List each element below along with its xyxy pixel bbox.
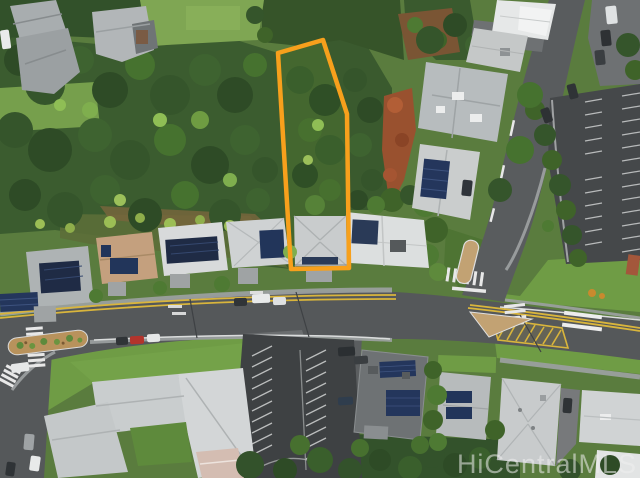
row-house-2 bbox=[96, 232, 158, 284]
watermark-text: HiCentralMLS bbox=[457, 449, 637, 478]
tr-house-1 bbox=[418, 62, 508, 142]
solar-carport bbox=[0, 292, 38, 312]
car bbox=[29, 455, 41, 471]
car bbox=[234, 298, 247, 306]
solar-array bbox=[420, 159, 450, 200]
car bbox=[354, 356, 369, 365]
car bbox=[23, 434, 34, 451]
modern-house bbox=[346, 212, 429, 268]
car bbox=[338, 396, 354, 405]
row-house-3 bbox=[158, 222, 228, 276]
aerial-photo: HiCentralMLS bbox=[0, 0, 640, 478]
car-red bbox=[130, 336, 144, 345]
car bbox=[273, 297, 286, 305]
car bbox=[338, 346, 356, 356]
car bbox=[562, 398, 572, 414]
solar-array bbox=[379, 360, 416, 378]
car bbox=[594, 50, 606, 66]
br-house-1 bbox=[436, 372, 491, 440]
car bbox=[147, 334, 160, 343]
solar-array bbox=[386, 390, 420, 416]
car bbox=[116, 337, 128, 346]
van bbox=[252, 294, 270, 304]
big-parking-lot bbox=[548, 84, 640, 264]
aerial-photo-canvas: HiCentralMLS bbox=[0, 0, 640, 478]
lot-house bbox=[294, 216, 347, 267]
row-house-4 bbox=[226, 218, 290, 268]
car bbox=[600, 30, 612, 47]
car bbox=[605, 5, 618, 24]
car bbox=[461, 180, 473, 197]
br-house-3 bbox=[579, 390, 640, 446]
